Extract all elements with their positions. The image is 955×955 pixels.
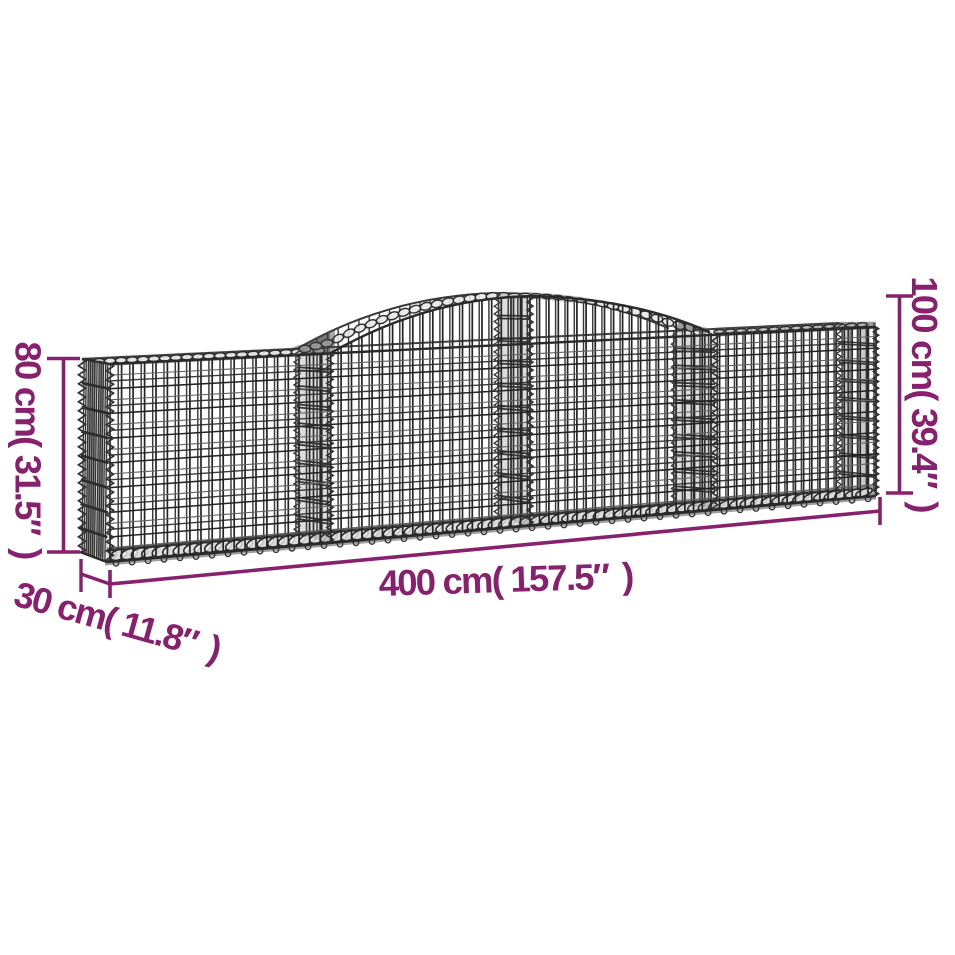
svg-text:80 cm( 31.5″ ): 80 cm( 31.5″ ) [8,342,49,560]
svg-text:30 cm( 11.8″ ): 30 cm( 11.8″ ) [10,573,226,669]
svg-text:400 cm( 157.5″ ): 400 cm( 157.5″ ) [378,555,634,604]
svg-text:100 cm( 39.4″ ): 100 cm( 39.4″ ) [904,276,945,512]
